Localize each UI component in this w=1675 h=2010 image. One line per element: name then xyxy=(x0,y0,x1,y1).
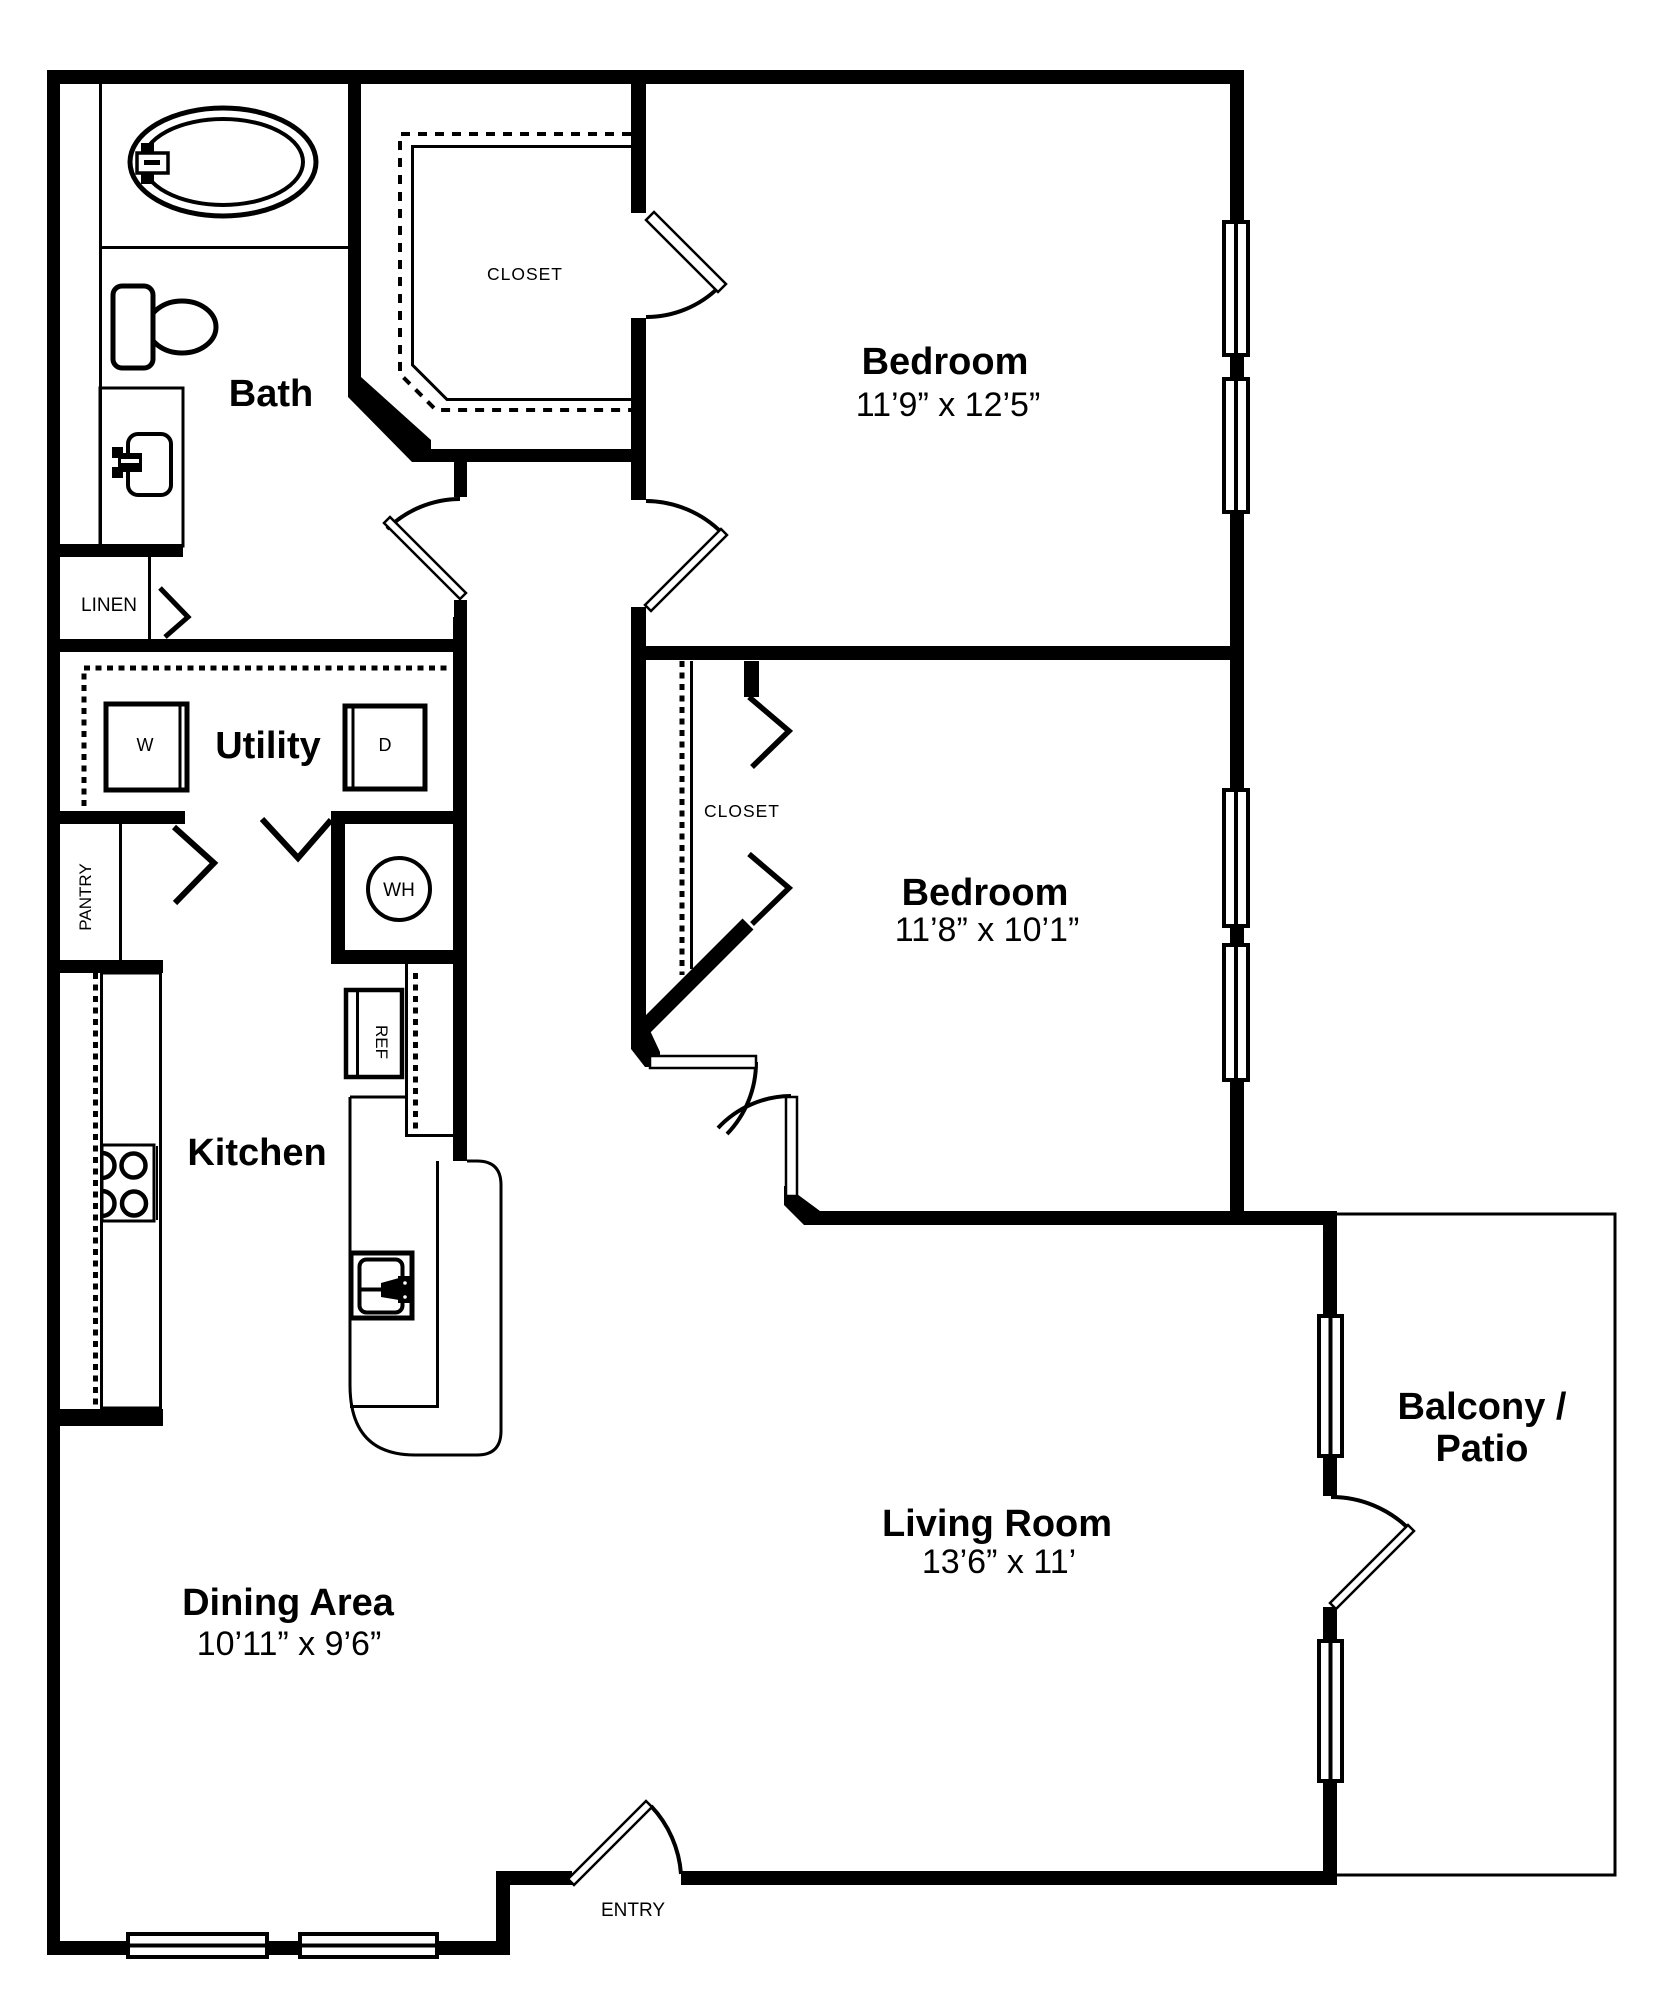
svg-text:Utility: Utility xyxy=(215,725,321,767)
svg-text:Dining Area: Dining Area xyxy=(182,1582,395,1624)
svg-text:10’11” x 9’6”: 10’11” x 9’6” xyxy=(197,1625,382,1663)
svg-text:11’9” x 12’5”: 11’9” x 12’5” xyxy=(856,386,1041,424)
svg-text:ENTRY: ENTRY xyxy=(601,1900,665,1921)
svg-text:PANTRY: PANTRY xyxy=(76,863,95,930)
svg-text:Bedroom: Bedroom xyxy=(902,872,1069,914)
svg-text:WH: WH xyxy=(383,880,415,901)
svg-text:CLOSET: CLOSET xyxy=(704,801,780,821)
svg-text:Kitchen: Kitchen xyxy=(187,1132,326,1174)
svg-text:Bedroom: Bedroom xyxy=(862,341,1029,383)
svg-text:13’6” x 11’: 13’6” x 11’ xyxy=(922,1543,1076,1581)
svg-text:Patio: Patio xyxy=(1436,1428,1529,1470)
svg-text:D: D xyxy=(379,735,392,755)
svg-text:LINEN: LINEN xyxy=(81,595,137,616)
svg-text:Living Room: Living Room xyxy=(882,1503,1112,1545)
svg-text:Bath: Bath xyxy=(229,373,313,415)
svg-text:11’8” x 10’1”: 11’8” x 10’1” xyxy=(895,911,1080,949)
svg-text:REF: REF xyxy=(372,1025,391,1059)
svg-text:CLOSET: CLOSET xyxy=(487,264,563,284)
svg-text:Balcony /: Balcony / xyxy=(1398,1386,1567,1428)
svg-text:W: W xyxy=(137,735,154,755)
